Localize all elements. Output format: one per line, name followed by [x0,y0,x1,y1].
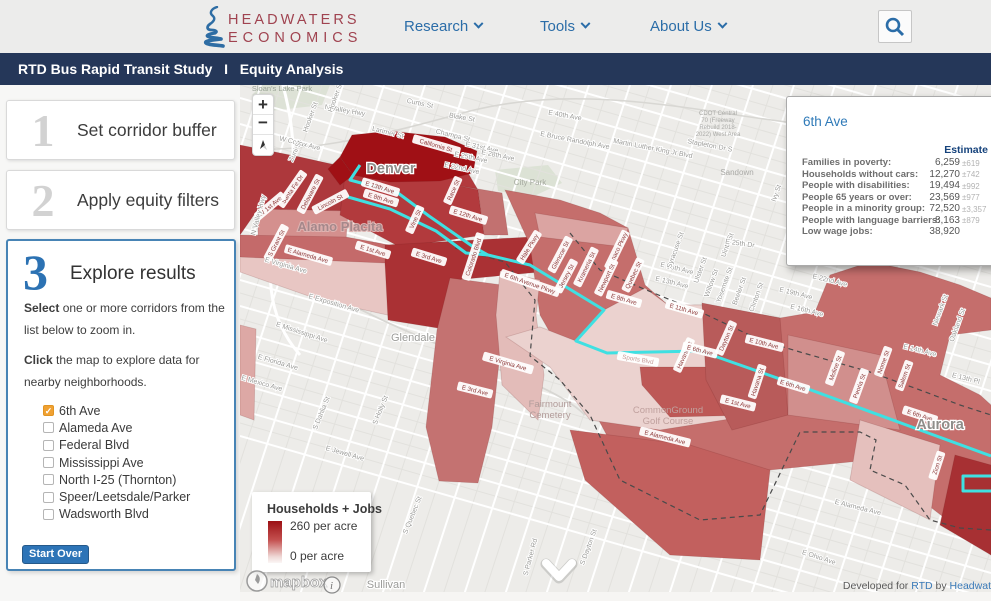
svg-text:Aurora: Aurora [916,417,964,433]
svg-text:Fairmount: Fairmount [529,399,572,410]
svg-text:2022) West Area: 2022) West Area [696,132,741,138]
svg-text:CommonGround: CommonGround [633,405,703,416]
svg-text:Alamo Placita: Alamo Placita [297,219,383,234]
svg-text:Sandown: Sandown [720,168,753,177]
svg-text:Golf Course: Golf Course [643,416,694,427]
svg-text:Rebuild 2018-: Rebuild 2018- [699,125,736,131]
svg-text:mapbox: mapbox [270,574,328,591]
svg-text:i: i [330,580,333,592]
svg-text:City Park: City Park [514,178,547,187]
svg-text:70 (Freeway: 70 (Freeway [701,118,734,124]
svg-text:Glendale: Glendale [391,332,435,344]
svg-text:CDOT Central: CDOT Central [699,111,737,117]
svg-text:Sullivan: Sullivan [367,579,406,591]
svg-text:Sloan's Lake Park: Sloan's Lake Park [252,85,312,93]
svg-text:Denver: Denver [366,161,416,177]
svg-text:Cemetery: Cemetery [529,410,570,421]
